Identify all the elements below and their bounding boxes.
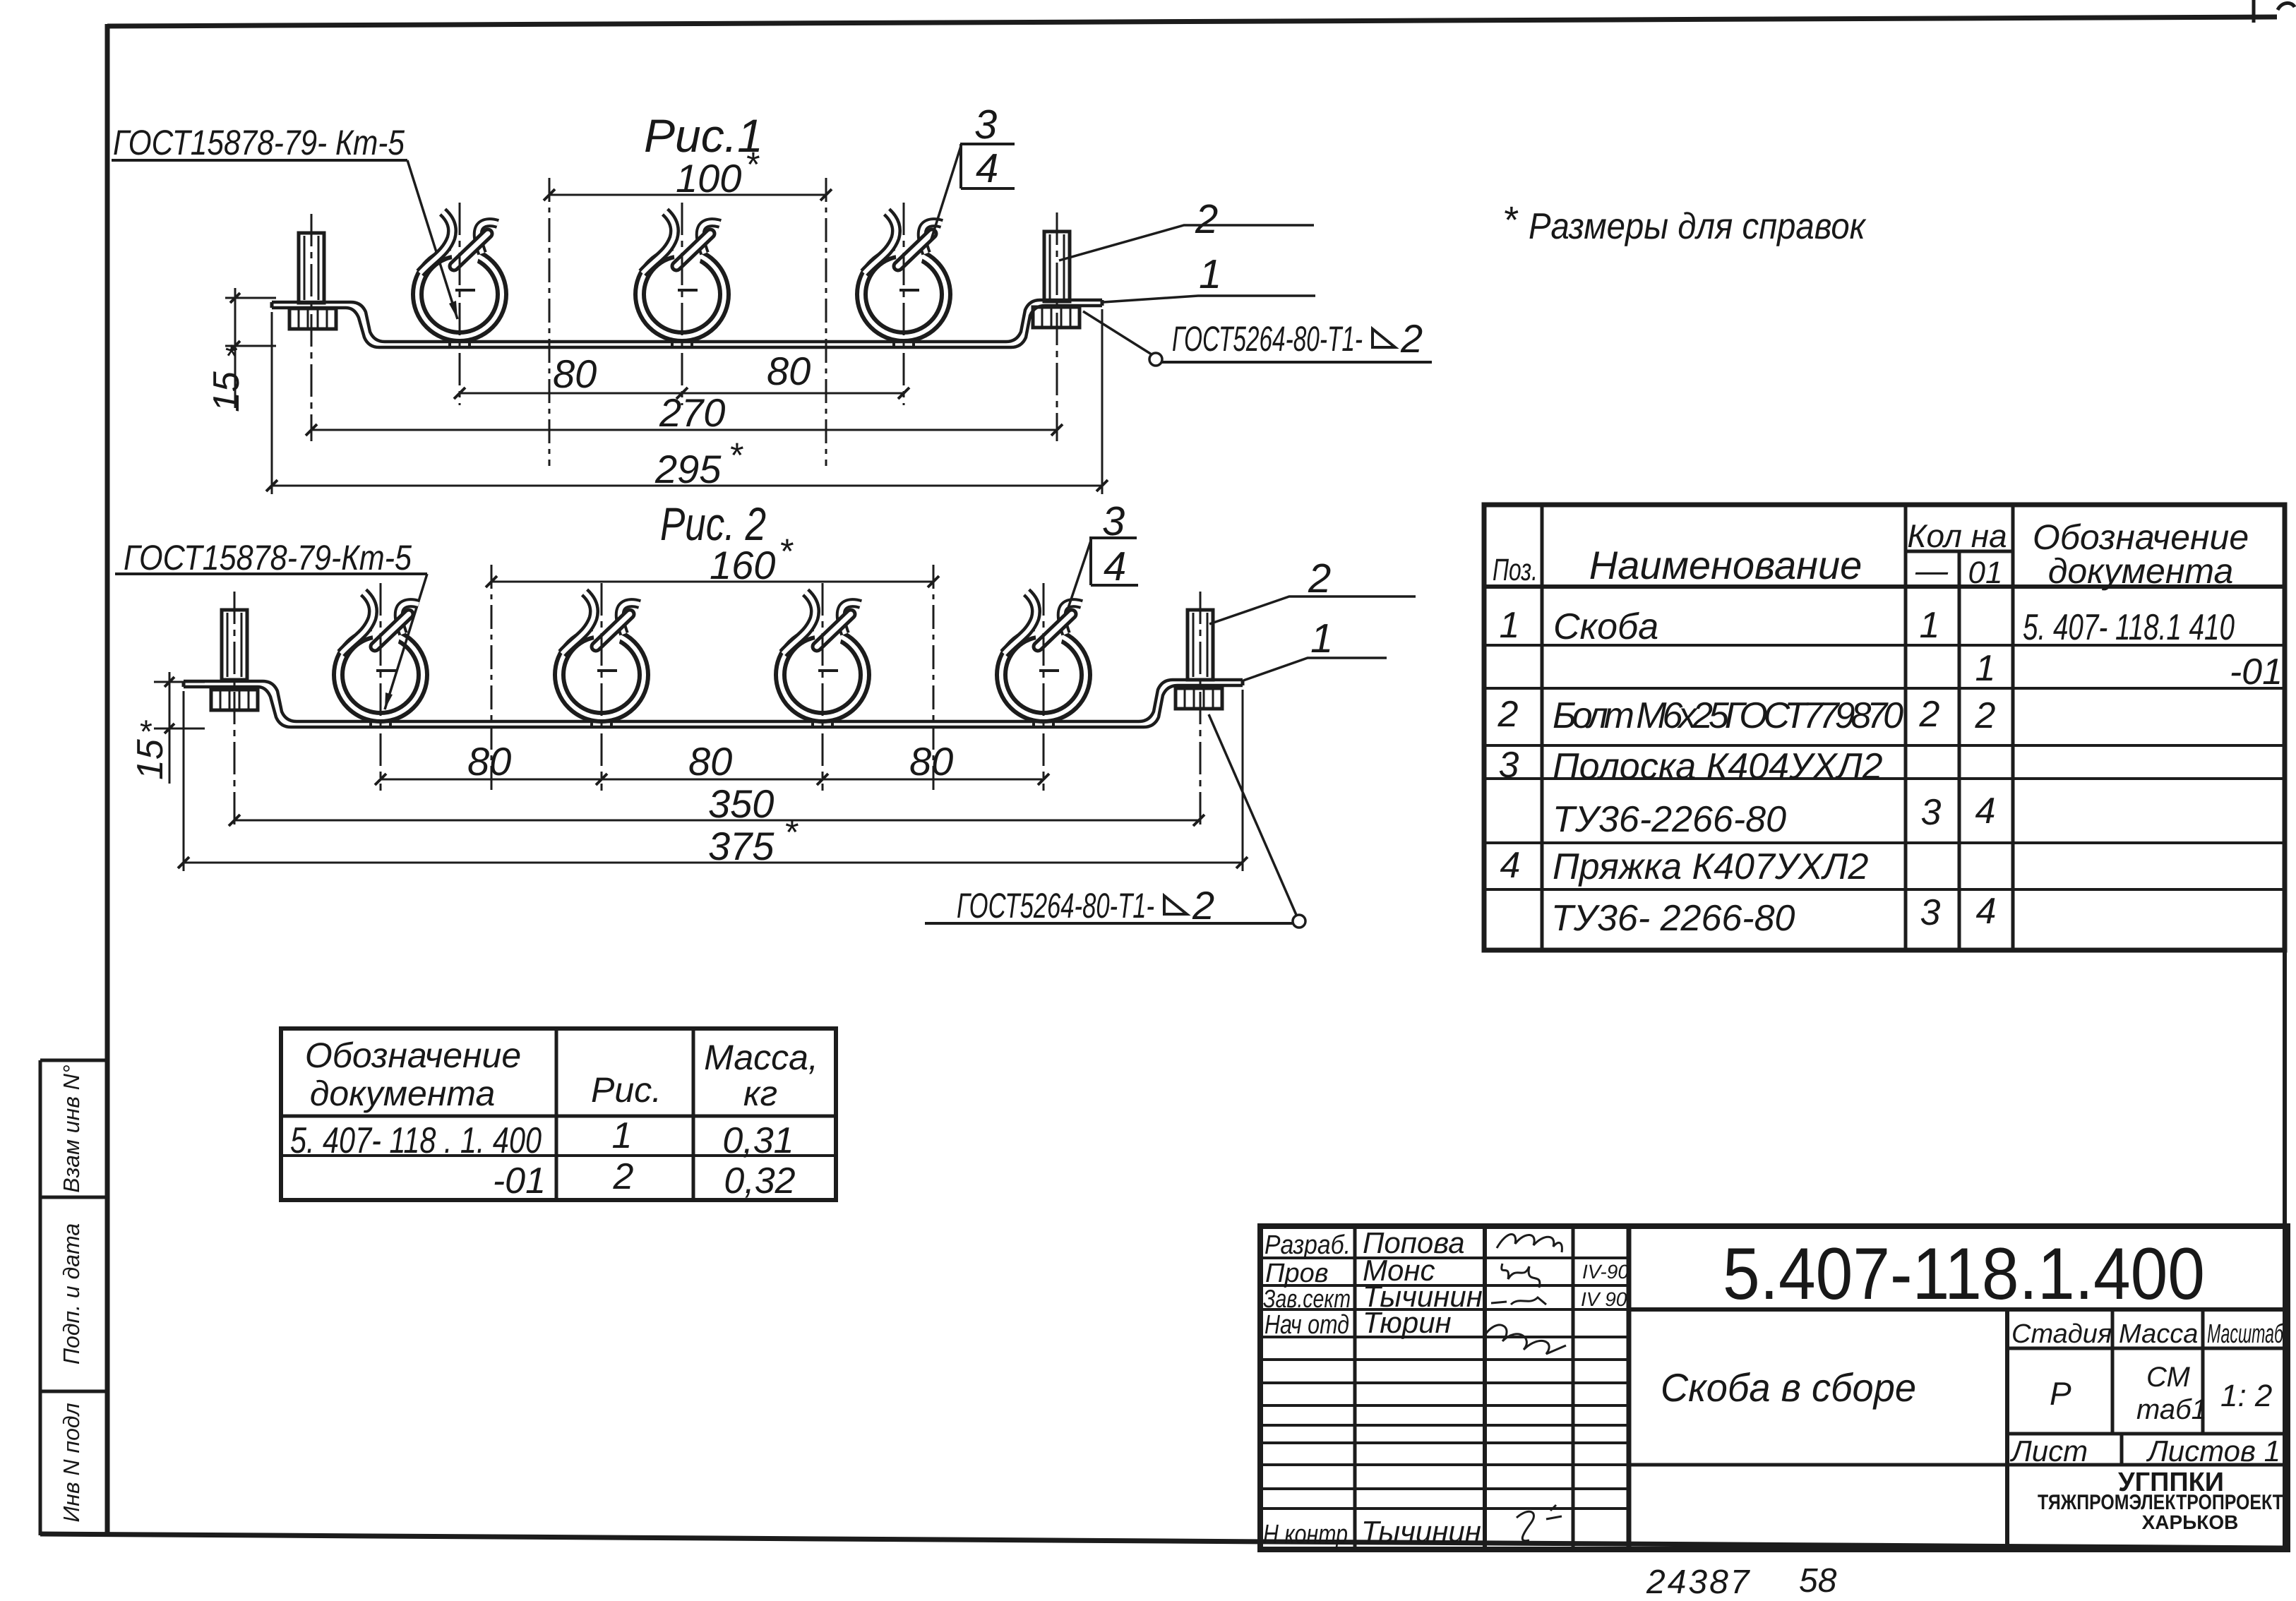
svg-text:2: 2 [613, 1156, 634, 1197]
svg-text:*: * [784, 813, 799, 852]
svg-text:Наименование: Наименование [1589, 543, 1862, 587]
svg-text:Р: Р [2050, 1375, 2071, 1412]
svg-text:1: 1 [1500, 605, 1520, 646]
svg-text:80: 80 [767, 349, 811, 393]
svg-text:3: 3 [1499, 745, 1519, 786]
svg-text:1: 1 [612, 1115, 633, 1156]
svg-text:Лист: Лист [2009, 1434, 2088, 1468]
svg-text:1: 2: 1: 2 [2220, 1379, 2272, 1413]
svg-text:Масса: Масса [2119, 1319, 2198, 1349]
svg-text:80: 80 [467, 739, 511, 784]
svg-text:5. 407- 118 . 1. 400: 5. 407- 118 . 1. 400 [290, 1120, 542, 1161]
svg-text:0,31: 0,31 [722, 1120, 794, 1161]
svg-text:Инв N подл: Инв N подл [59, 1403, 84, 1522]
svg-text:*: * [1502, 199, 1519, 241]
svg-text:2: 2 [1497, 694, 1519, 735]
svg-text:Н контр: Н контр [1263, 1520, 1348, 1549]
svg-text:375: 375 [708, 824, 775, 868]
svg-text:Рис. 2: Рис. 2 [660, 498, 766, 550]
svg-text:295: 295 [654, 447, 722, 491]
svg-text:5. 407- 118.1 410: 5. 407- 118.1 410 [2023, 607, 2235, 648]
svg-text:80: 80 [688, 739, 732, 784]
svg-text:IV-90: IV-90 [1582, 1261, 1629, 1283]
svg-text:документа: документа [2048, 551, 2234, 591]
svg-text:01: 01 [1968, 556, 2003, 590]
svg-text:ГОСТ15878-79- Кт-5: ГОСТ15878-79- Кт-5 [113, 123, 405, 162]
svg-text:2: 2 [1308, 556, 1331, 601]
svg-text:Подп. и дата: Подп. и дата [59, 1223, 84, 1365]
svg-text:*: * [745, 145, 760, 184]
svg-text:Скоба: Скоба [1553, 606, 1658, 647]
svg-text:Скоба в сборе: Скоба в сборе [1661, 1365, 1916, 1410]
svg-text:4: 4 [1975, 791, 1996, 832]
svg-text:таб1: таб1 [2136, 1394, 2207, 1425]
svg-text:Разраб.: Разраб. [1264, 1230, 1351, 1260]
svg-text:*: * [138, 713, 153, 750]
svg-text:80: 80 [909, 739, 953, 784]
svg-text:*: * [729, 436, 743, 475]
svg-text:-01: -01 [493, 1161, 546, 1201]
svg-text:1: 1 [1920, 605, 1940, 646]
svg-text:кг: кг [743, 1074, 777, 1113]
svg-text:100: 100 [676, 156, 741, 200]
svg-text:15: 15 [206, 371, 247, 412]
svg-text:3: 3 [1921, 792, 1942, 833]
svg-text:Кол на: Кол на [1907, 517, 2007, 554]
svg-text:1: 1 [1310, 616, 1333, 661]
svg-text:0,32: 0,32 [724, 1161, 795, 1201]
svg-text:4: 4 [976, 145, 998, 191]
svg-text:*: * [779, 532, 794, 571]
svg-text:Рис.: Рис. [591, 1070, 662, 1110]
svg-text:4: 4 [1976, 891, 1997, 932]
svg-text:350: 350 [708, 781, 774, 826]
svg-text:2: 2 [1975, 695, 1996, 736]
svg-text:270: 270 [659, 390, 725, 435]
svg-text:24387: 24387 [1646, 1564, 1751, 1601]
svg-text:5.407-118.1.400: 5.407-118.1.400 [1723, 1233, 2205, 1315]
svg-text:2: 2 [1192, 883, 1214, 928]
svg-text:ХАРЬКОВ: ХАРЬКОВ [2142, 1511, 2239, 1533]
svg-text:Тюрин: Тюрин [1363, 1306, 1452, 1339]
svg-text:4: 4 [1500, 845, 1521, 886]
svg-text:58: 58 [1799, 1562, 1837, 1600]
svg-text:IV 90: IV 90 [1581, 1288, 1627, 1310]
svg-text:2: 2 [1195, 196, 1218, 242]
svg-text:3: 3 [974, 102, 997, 148]
svg-text:ГОСТ15878-79-Кт-5: ГОСТ15878-79-Кт-5 [124, 538, 412, 577]
svg-text:—: — [1915, 552, 1949, 589]
svg-text:160: 160 [710, 543, 775, 587]
svg-text:3: 3 [1920, 892, 1941, 933]
svg-text:Поз.: Поз. [1493, 553, 1538, 587]
svg-text:Размеры для справок: Размеры для справок [1529, 206, 1867, 247]
svg-text:1: 1 [1975, 648, 1996, 689]
svg-text:Взам инв N°: Взам инв N° [59, 1065, 84, 1193]
svg-text:Полоска К404УХЛ2: Полоска К404УХЛ2 [1553, 746, 1883, 787]
svg-text:2: 2 [1919, 694, 1940, 735]
svg-text:ТУ36- 2266-80: ТУ36- 2266-80 [1551, 898, 1795, 939]
svg-text:ГОСТ5264-80-Т1-: ГОСТ5264-80-Т1- [1172, 319, 1363, 359]
svg-text:-01: -01 [2230, 652, 2283, 692]
svg-text:80: 80 [553, 352, 597, 396]
svg-text:2: 2 [1400, 316, 1423, 361]
svg-text:ТУ36-2266-80: ТУ36-2266-80 [1553, 799, 1786, 840]
svg-text:Листов 1: Листов 1 [2146, 1434, 2280, 1468]
svg-text:Масштаб: Масштаб [2207, 1319, 2284, 1349]
svg-text:*: * [224, 337, 238, 374]
svg-text:Пряжка К407УХЛ2: Пряжка К407УХЛ2 [1553, 846, 1868, 887]
svg-text:документа: документа [310, 1074, 496, 1113]
svg-text:Тычинин: Тычинин [1361, 1515, 1481, 1548]
svg-text:Обозначение: Обозначение [305, 1036, 521, 1075]
svg-text:Болт М6х25ГОСТ779870: Болт М6х25ГОСТ779870 [1553, 695, 1903, 736]
svg-text:Зав.сект: Зав.сект [1263, 1284, 1351, 1313]
svg-text:Нач отд: Нач отд [1264, 1310, 1349, 1340]
svg-text:1: 1 [1199, 251, 1221, 297]
svg-text:Масса,: Масса, [704, 1038, 818, 1077]
svg-text:Стадия: Стадия [2011, 1319, 2112, 1349]
svg-text:4: 4 [1104, 544, 1126, 589]
svg-text:СМ: СМ [2146, 1362, 2190, 1393]
svg-text:ГОСТ5264-80-Т1-: ГОСТ5264-80-Т1- [957, 886, 1154, 925]
